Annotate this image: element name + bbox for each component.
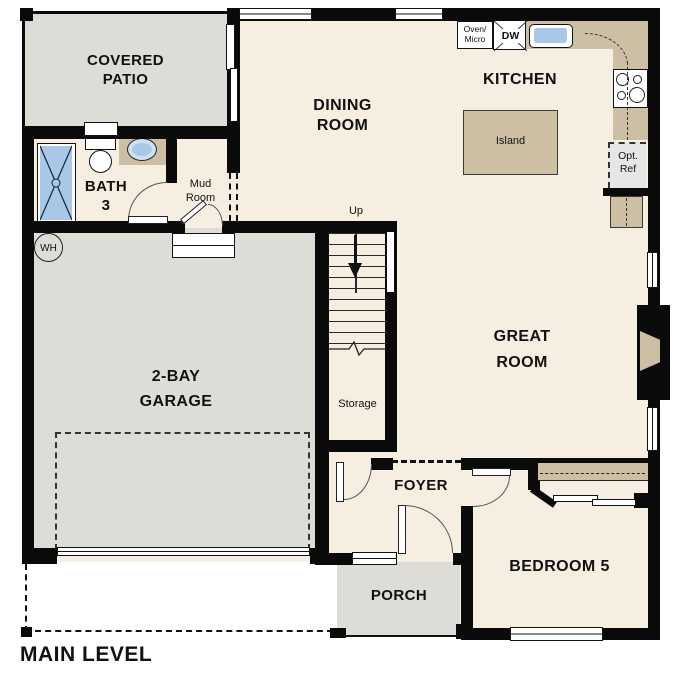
island-label: Island — [463, 135, 558, 149]
window-greatroom-upper — [647, 252, 658, 288]
shower-x-icon — [40, 146, 72, 220]
wall-storage-south — [315, 440, 397, 452]
oven-micro-label: Oven/Micro — [458, 24, 492, 44]
window-kitchen-top — [395, 8, 443, 20]
wall-bath-mud-divider — [166, 139, 177, 183]
window-dining-top — [239, 8, 312, 20]
room-label-covered-patio: COVEREDPATIO — [58, 52, 193, 90]
wall-garage-east — [315, 221, 329, 565]
wall-porch-north-right — [453, 553, 473, 565]
cabinet-dash-vertical — [626, 198, 627, 226]
bath-sink-basin — [132, 143, 152, 156]
mudroom-opening-dash-2 — [236, 173, 238, 221]
toilet-bowl — [89, 150, 112, 173]
plan-title: MAIN LEVEL — [20, 643, 270, 667]
window-bedroom5 — [510, 627, 603, 641]
window-greatroom-lower — [647, 407, 658, 451]
garage-door — [57, 547, 310, 556]
wall-foyer-north-stub — [371, 458, 393, 470]
wall-exterior-left — [22, 126, 34, 564]
room-label-kitchen: KITCHEN — [460, 70, 580, 90]
foyer-opening-dash — [392, 460, 461, 463]
closet-rod-dash — [540, 473, 645, 474]
room-label-porch: PORCH — [363, 587, 435, 606]
stair-railing — [387, 232, 394, 292]
wall-patio-left — [22, 11, 25, 130]
wall-kitchen-ref-divider — [603, 188, 648, 196]
water-heater: WH — [34, 233, 63, 262]
room-label-mud-room: MudRoom — [178, 177, 223, 206]
driveway-dash-bottom — [25, 630, 333, 632]
kitchen-sink — [529, 24, 573, 48]
window-bath — [84, 122, 118, 136]
floor-plan: Oven/Micro DW Opt.Ref WH — [0, 0, 686, 683]
room-label-bedroom-5: BEDROOM 5 — [492, 557, 627, 577]
oven-micro: Oven/Micro — [457, 21, 493, 49]
opt-ref-label: Opt.Ref — [610, 150, 646, 176]
mudroom-opening-dash-1 — [229, 173, 231, 221]
wall-garage-south-right — [310, 548, 325, 564]
porch-corner-post-left — [330, 628, 346, 638]
room-label-bath-3: BATH3 — [75, 178, 137, 216]
stair-treads — [329, 233, 385, 345]
bath-sink — [127, 138, 157, 161]
stair-arrow-shaft — [354, 235, 357, 265]
wall-garage-north-right — [222, 221, 325, 233]
optional-refrigerator: Opt.Ref — [608, 142, 646, 188]
dishwasher: DW — [493, 20, 526, 50]
wall-patio-top — [22, 11, 230, 14]
room-label-great-room: GREATROOM — [462, 324, 582, 375]
driveway-dash-left — [25, 564, 27, 632]
cooktop — [613, 69, 648, 108]
bath-door-leaf — [128, 216, 168, 224]
storage-label: Storage — [330, 398, 385, 412]
cooktop-burner-2 — [633, 75, 642, 84]
wall-porch-north-left — [325, 553, 352, 565]
mudroom-step-2 — [172, 245, 235, 258]
bedroom5-door-leaf — [472, 468, 511, 476]
stairs-up-label: Up — [341, 205, 371, 219]
room-label-foyer: FOYER — [390, 477, 452, 496]
room-label-garage: 2-BAYGARAGE — [110, 365, 242, 415]
water-heater-label: WH — [40, 243, 57, 254]
room-label-dining-room: DININGROOM — [295, 96, 390, 136]
shower-pan — [40, 146, 72, 220]
shower — [37, 143, 76, 224]
closet-bypass-door-2 — [592, 499, 636, 506]
closet-shelf — [538, 463, 648, 481]
cooktop-burner-4 — [629, 87, 645, 103]
wall-mudroom-east-upper — [227, 139, 240, 173]
window-foyer-sidelite — [352, 552, 397, 565]
wall-patio-bath — [22, 126, 240, 139]
driveway-corner-post — [21, 627, 32, 637]
storage-door-leaf — [336, 462, 344, 502]
wall-closet-right-block — [634, 493, 650, 508]
counter-dash-vertical — [627, 62, 628, 140]
dishwasher-label: DW — [497, 29, 524, 43]
patio-slider-panel-1 — [226, 24, 235, 70]
driveway-area — [20, 562, 337, 640]
front-door-leaf — [398, 505, 406, 554]
cooktop-burner-3 — [617, 91, 626, 100]
garage-bay-dashed-outline — [55, 432, 310, 550]
wall-garage-south-left — [22, 548, 57, 564]
stair-arrow-head — [348, 263, 362, 278]
kitchen-sink-basin — [534, 28, 567, 43]
patio-slider-panel-2 — [230, 68, 238, 122]
stair-break-line — [327, 340, 385, 358]
